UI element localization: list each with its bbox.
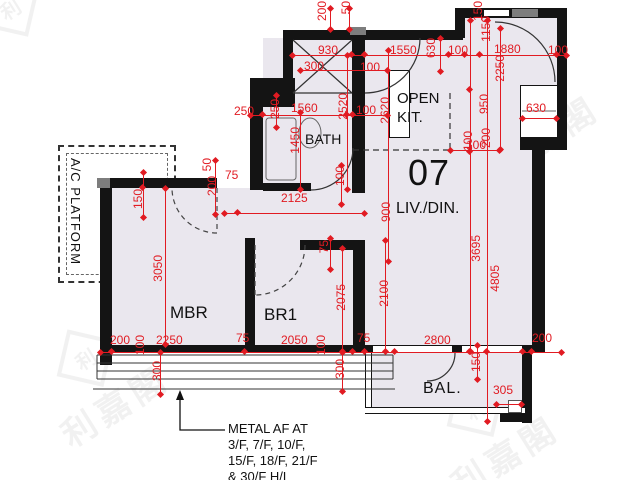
dimension-label: 2250 [494,55,507,82]
living-dining-label: LIV./DIN. [396,200,459,218]
dimension-label: 1560 [291,102,318,115]
dimension-label: 250 [269,99,282,119]
floor-plan: 利 利 利嘉閣 利 利嘉閣 利 利嘉閣 利 利嘉閣 [0,0,640,480]
wall [245,238,255,345]
balcony-rail [365,407,525,414]
dimension-label: 100 [548,44,568,57]
dimension-label: 2050 [281,334,308,347]
dimension-label: 50 [201,158,214,171]
dimension-label: 150 [132,189,145,209]
dimension-label: 100 [448,44,468,57]
bedroom1-label: BR1 [264,305,297,325]
open-kitchen-label: OPEN KIT. [397,89,440,127]
wall-segment [97,178,110,188]
wall [97,178,217,188]
dimension-label: 200 [110,334,130,347]
dimension-label: 200 [316,1,329,21]
wall-segment [512,9,538,17]
dimension-label: 100 [356,104,376,117]
dimension-label: 3695 [470,235,483,262]
bath-label: BATH [305,131,341,147]
dimension-label: 900 [380,202,393,222]
dimension-label: 630 [425,38,438,58]
dimension-label: 2520 [337,93,350,120]
watermark-logo-icon: 利 [0,0,39,37]
dimension-label: 100 [134,335,147,355]
dimension-line [330,8,331,30]
dimension-line [440,38,441,72]
dimension-label: 1550 [390,44,417,57]
dimension-line [165,188,166,345]
dimension-label: 1450 [289,127,302,154]
dimension-label: 4805 [489,265,502,292]
note-line: & 30/F H/L [228,469,318,480]
dimension-label: 150 [470,352,483,372]
dimension-label: 1150 [480,16,493,42]
dimension-line [100,352,562,353]
dimension-label: 100 [466,139,486,152]
dimension-label: 2100 [378,280,391,307]
wall [520,137,567,150]
dimension-label: 305 [493,384,513,397]
dimension-line [347,55,348,190]
dimension-label: 200 [532,332,552,345]
dimension-label: 75 [236,332,249,345]
dimension-label: 100 [315,335,328,355]
watermark: 利 [0,0,43,41]
dimension-label: 3050 [152,255,165,282]
dimension-label: 100 [334,166,347,186]
dimension-label: 300 [151,361,164,381]
metal-af-note: METAL AF AT3/F, 7/F, 10/F,15/F, 18/F, 21… [228,421,318,480]
dimension-label: 2075 [335,284,348,311]
dimension-line [388,50,389,262]
dimension-label: 100 [360,61,380,74]
dimension-label: 2125 [281,192,308,205]
dimension-label: 930 [318,44,338,57]
wall [532,150,545,352]
note-line: 3/F, 7/F, 10/F, [228,437,318,453]
ac-platform-label: A/C PLATFORM [68,158,83,265]
balcony-label: BAL. [423,380,462,398]
dimension-label: 50 [340,1,353,14]
master-bedroom-label: MBR [170,303,208,323]
wall [353,240,365,345]
dimension-label: 2800 [424,334,451,347]
wall [500,413,532,422]
dimension-line [470,20,471,352]
wall [263,183,311,191]
dimension-label: 2620 [379,97,392,124]
dimension-label: 630 [526,102,546,115]
dimension-label: 250 [234,105,254,118]
note-line: 15/F, 18/F, 21/F [228,453,318,469]
dimension-label: 75 [318,240,331,253]
wall [455,18,465,38]
dimension-label: 75 [357,332,370,345]
dimension-label: 300 [304,60,324,73]
dimension-line [496,404,522,405]
dimension-label: 200 [206,176,219,196]
note-line: METAL AF AT [228,421,318,437]
dimension-line [487,20,488,422]
dimension-label: 950 [478,94,491,114]
dimension-label: 75 [225,169,238,182]
dimension-line [522,118,557,119]
dimension-label: 2250 [156,334,183,347]
dimension-line [224,213,365,214]
balcony-rail [365,353,372,413]
unit-number: 07 [408,152,450,194]
wall [250,78,263,190]
dimension-label: 300 [334,359,347,379]
